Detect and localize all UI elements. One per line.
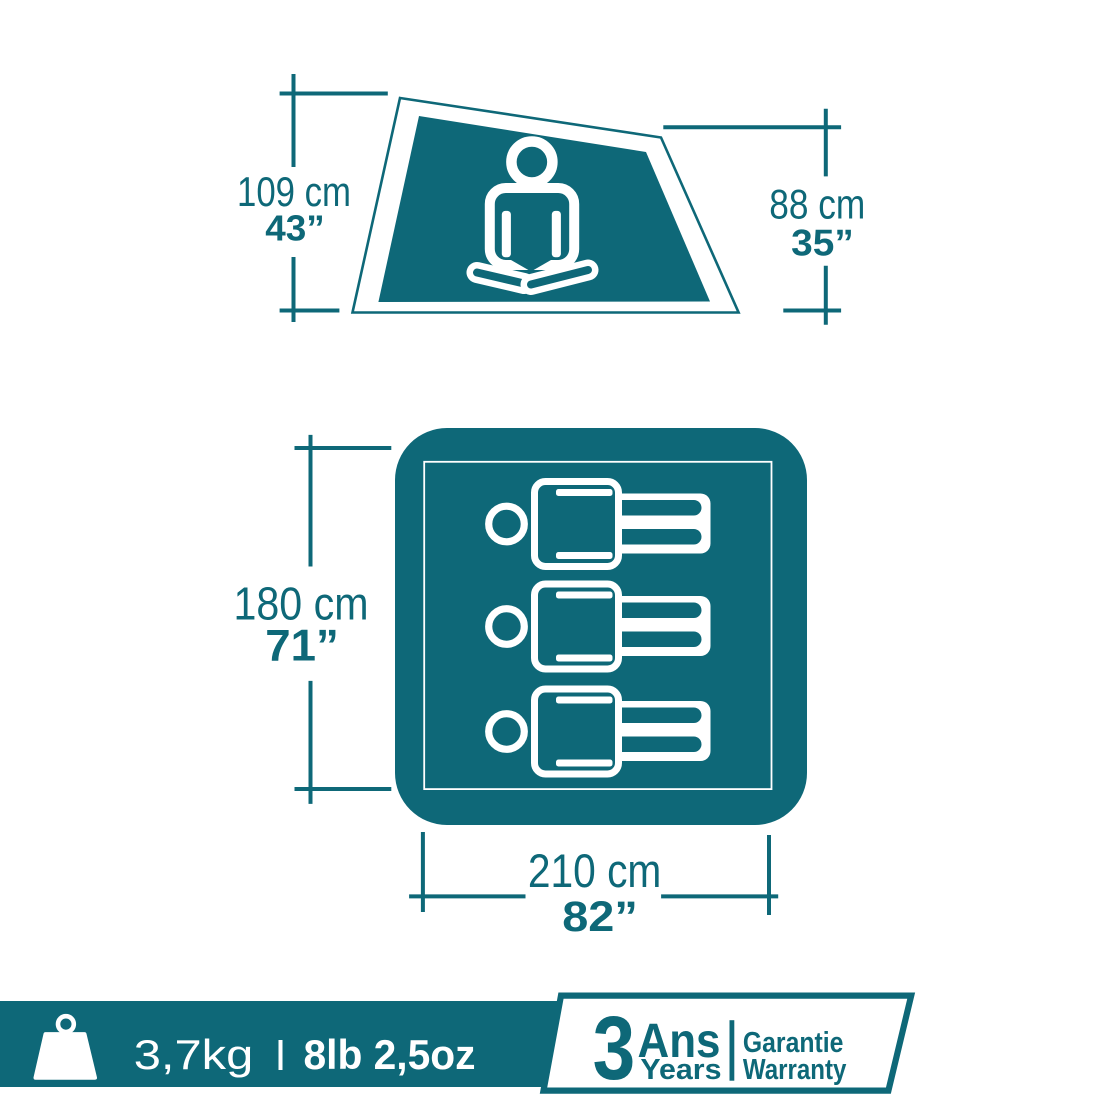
- svg-text:71”: 71”: [265, 621, 339, 670]
- svg-text:3: 3: [593, 999, 636, 1099]
- svg-text:82”: 82”: [562, 893, 638, 941]
- svg-text:8lb 2,5oz: 8lb 2,5oz: [304, 1031, 476, 1078]
- svg-text:Years: Years: [640, 1054, 721, 1086]
- svg-text:3,7kg: 3,7kg: [134, 1031, 254, 1078]
- svg-text:Warranty: Warranty: [743, 1054, 847, 1086]
- svg-text:210 cm: 210 cm: [528, 844, 662, 897]
- svg-text:43”: 43”: [265, 207, 325, 248]
- svg-text:35”: 35”: [791, 221, 854, 263]
